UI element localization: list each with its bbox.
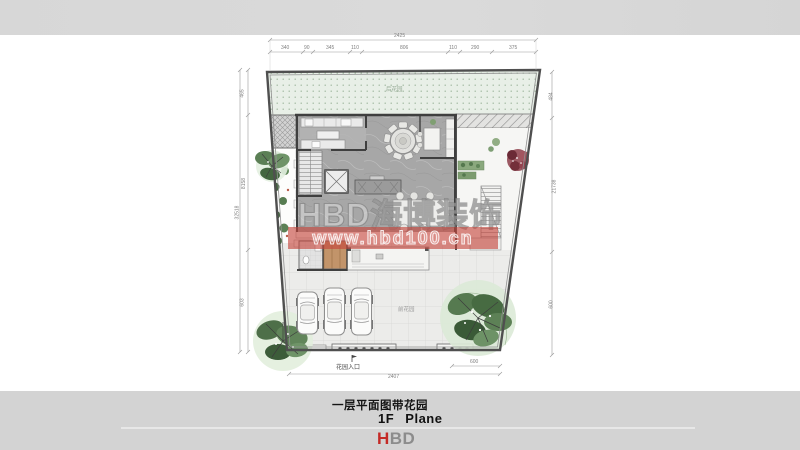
plan-title-en: 1F Plane (378, 411, 442, 426)
dim-top-seg: 345 (326, 46, 334, 51)
dim-bottom-sub: 600 (470, 360, 478, 365)
dim-right-seg: 600 (550, 300, 555, 308)
presentation-slide: 2425 340 90 345 110 806 110 290 375 465 … (0, 0, 800, 450)
car (323, 288, 346, 335)
website-watermark: www.hbd100.cn (312, 228, 473, 249)
dim-top-seg: 375 (509, 46, 517, 51)
garden-entrance-label: 花园入口 (336, 362, 360, 371)
dim-left-seg: 465 (241, 89, 246, 97)
dim-top-seg: 90 (304, 46, 310, 51)
car (350, 288, 373, 335)
dim-right-seg: 484 (550, 92, 555, 100)
pergola-trellis (456, 114, 540, 128)
dim-left-total: 32518 (235, 206, 240, 220)
dim-top-seg: 290 (471, 46, 479, 51)
dim-top-seg: 806 (400, 46, 408, 51)
hbd-logo-bd: BD (390, 429, 416, 448)
watermark-red-band: www.hbd100.cn (288, 227, 498, 249)
dim-top-total: 2425 (394, 34, 405, 39)
dim-left-seg: 8158 (242, 178, 247, 189)
dim-right-seg: 21738 (552, 180, 557, 194)
dim-bottom-total: 2407 (388, 375, 399, 380)
front-wall-and-gates (300, 344, 473, 353)
front-yard-label: 前花园 (398, 305, 415, 313)
dim-left-seg: 603 (241, 298, 246, 306)
main-stairs (299, 151, 322, 194)
dim-top-seg: 110 (449, 46, 457, 51)
car (296, 292, 319, 334)
back-garden-label: 后花园 (386, 85, 403, 93)
parked-cars (296, 288, 373, 335)
hbd-logo-h: H (377, 429, 390, 448)
hbd-logo: HBD (377, 429, 415, 449)
dim-top-seg: 340 (281, 46, 289, 51)
dim-top-seg: 110 (351, 46, 359, 51)
entrance-marker (352, 355, 357, 362)
